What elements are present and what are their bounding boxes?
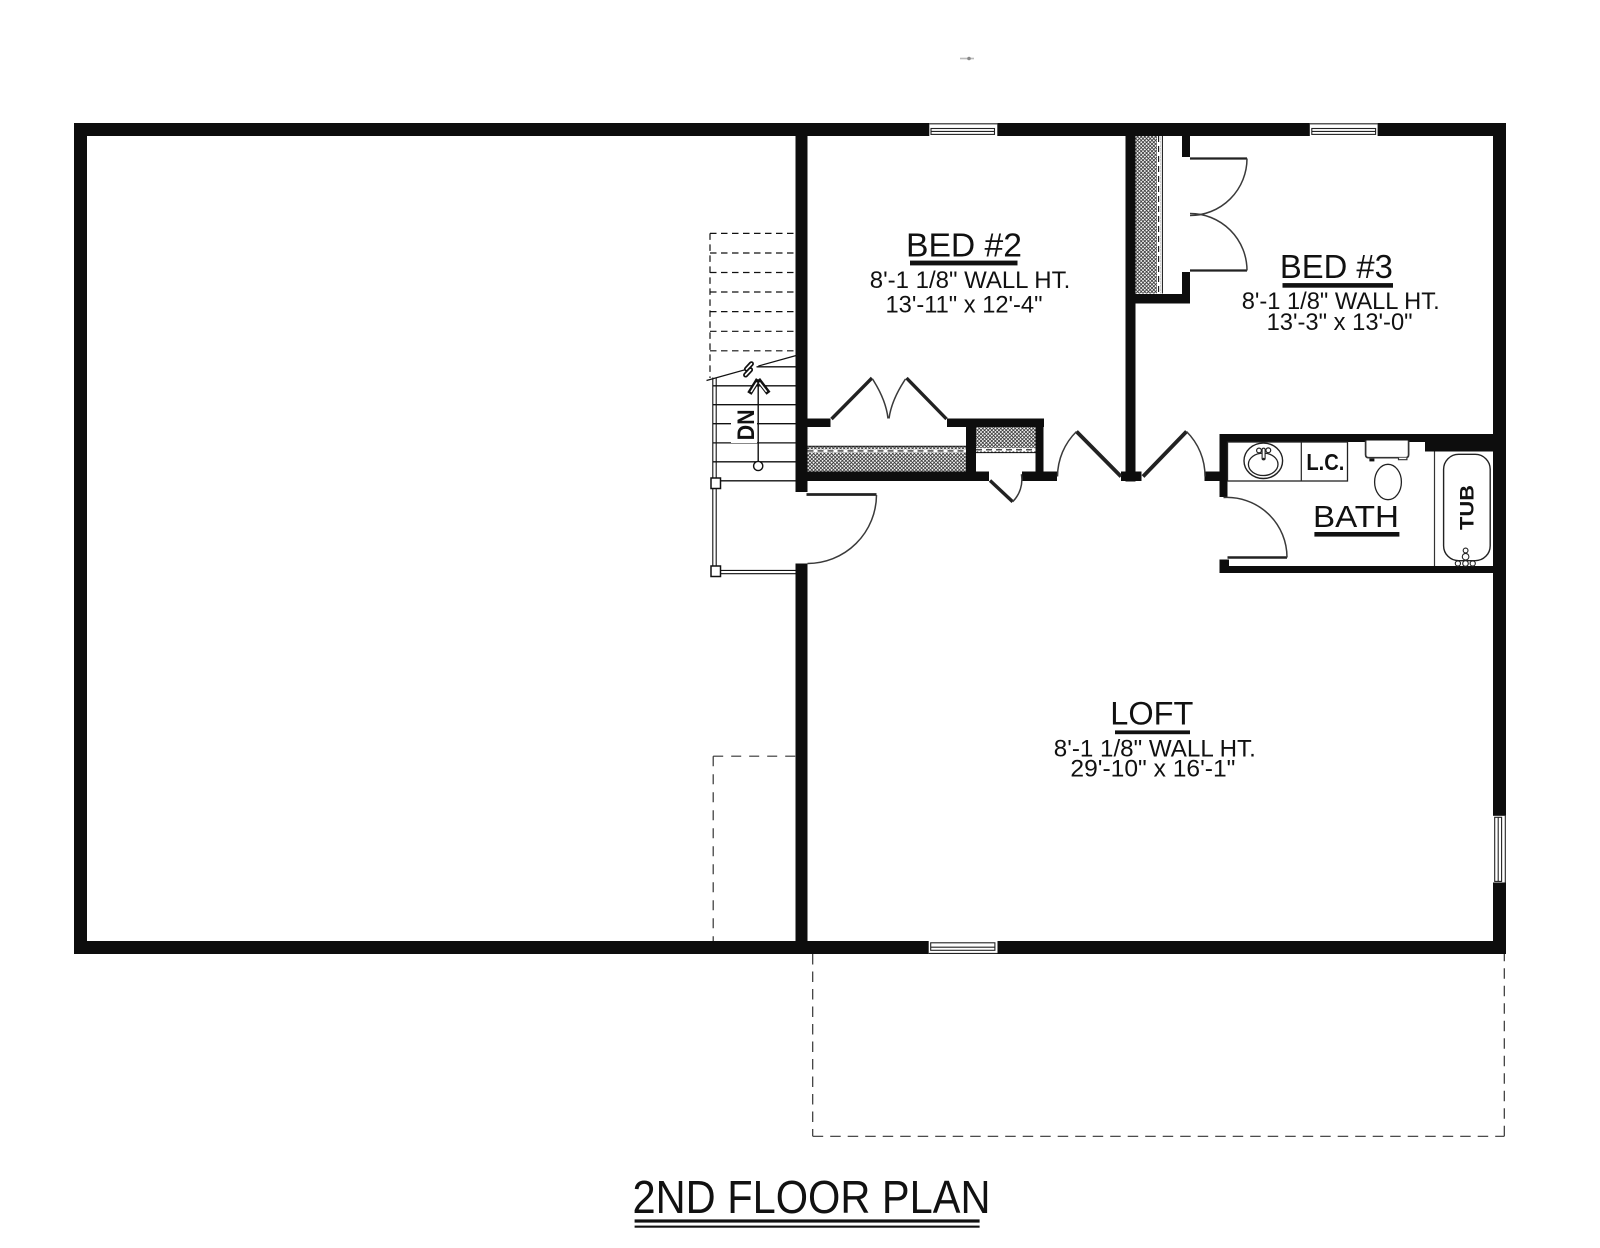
svg-text:8'-1 1/8" WALL HT.: 8'-1 1/8" WALL HT. — [870, 267, 1071, 294]
svg-text:BED #3: BED #3 — [1280, 248, 1393, 285]
svg-text:13'-3" x 13'-0": 13'-3" x 13'-0" — [1267, 309, 1413, 336]
svg-text:29'-10" x 16'-1": 29'-10" x 16'-1" — [1070, 756, 1235, 783]
svg-text:TUB: TUB — [1458, 485, 1479, 530]
svg-text:BATH: BATH — [1313, 499, 1399, 534]
svg-text:LOFT: LOFT — [1110, 696, 1193, 732]
svg-text:DN: DN — [733, 409, 760, 440]
svg-text:BED #2: BED #2 — [906, 227, 1022, 264]
svg-text:2ND FLOOR PLAN: 2ND FLOOR PLAN — [633, 1171, 991, 1223]
svg-text:L.C.: L.C. — [1306, 449, 1344, 475]
svg-text:13'-11" x 12'-4": 13'-11" x 12'-4" — [886, 292, 1043, 319]
